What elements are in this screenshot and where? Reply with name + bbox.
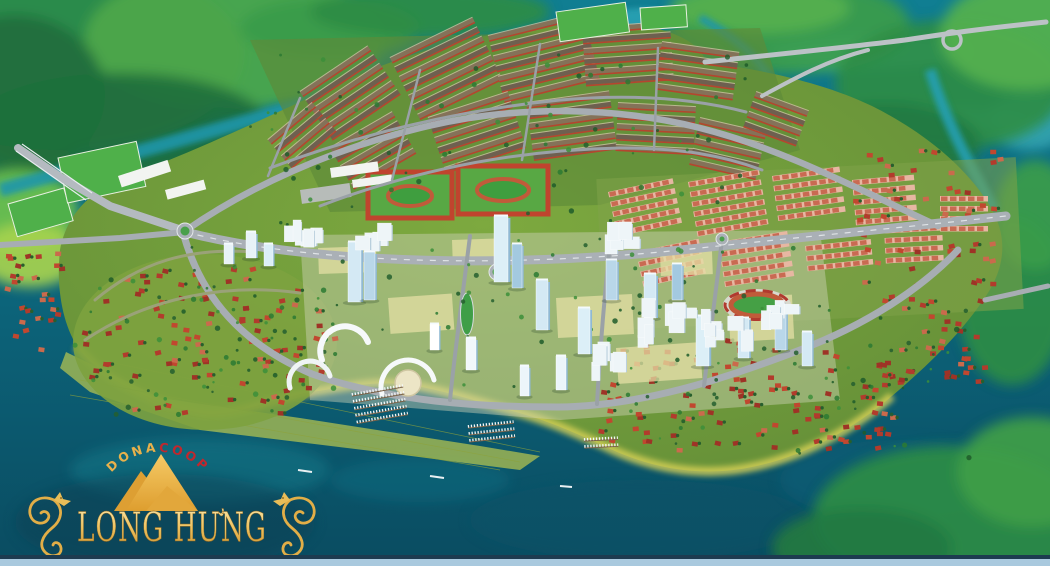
aerial-masterplan-rendering: DONACOOP LONG HƯNG	[0, 0, 1050, 566]
scene-canvas: DONACOOP LONG HƯNG	[0, 0, 1050, 566]
footer-strip	[0, 555, 1050, 566]
project-name-text: LONG HƯNG	[77, 505, 267, 551]
